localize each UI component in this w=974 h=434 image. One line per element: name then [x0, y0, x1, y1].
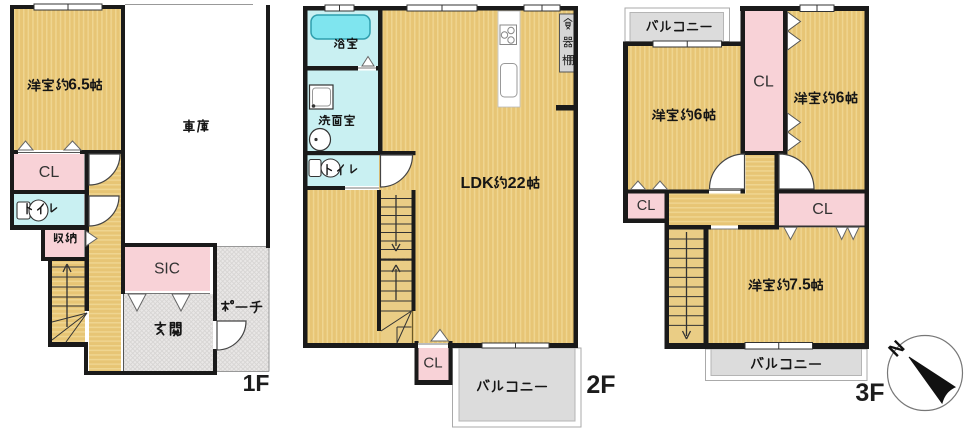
svg-text:CL: CL [423, 355, 442, 372]
svg-text:6: 6 [836, 90, 845, 107]
svg-text:2F: 2F [586, 371, 615, 399]
svg-text:CL: CL [753, 74, 774, 91]
svg-text:6.5: 6.5 [68, 77, 90, 94]
svg-text:LDK: LDK [461, 174, 494, 192]
svg-text:3F: 3F [855, 379, 884, 407]
svg-text:CL: CL [39, 164, 60, 181]
svg-text:7.5: 7.5 [789, 277, 811, 294]
svg-text:CL: CL [812, 201, 833, 218]
svg-text:22: 22 [508, 174, 526, 192]
svg-text:1F: 1F [243, 370, 270, 396]
svg-text:SIC: SIC [154, 261, 180, 278]
svg-text:CL: CL [637, 198, 656, 214]
svg-text:6: 6 [694, 107, 703, 124]
